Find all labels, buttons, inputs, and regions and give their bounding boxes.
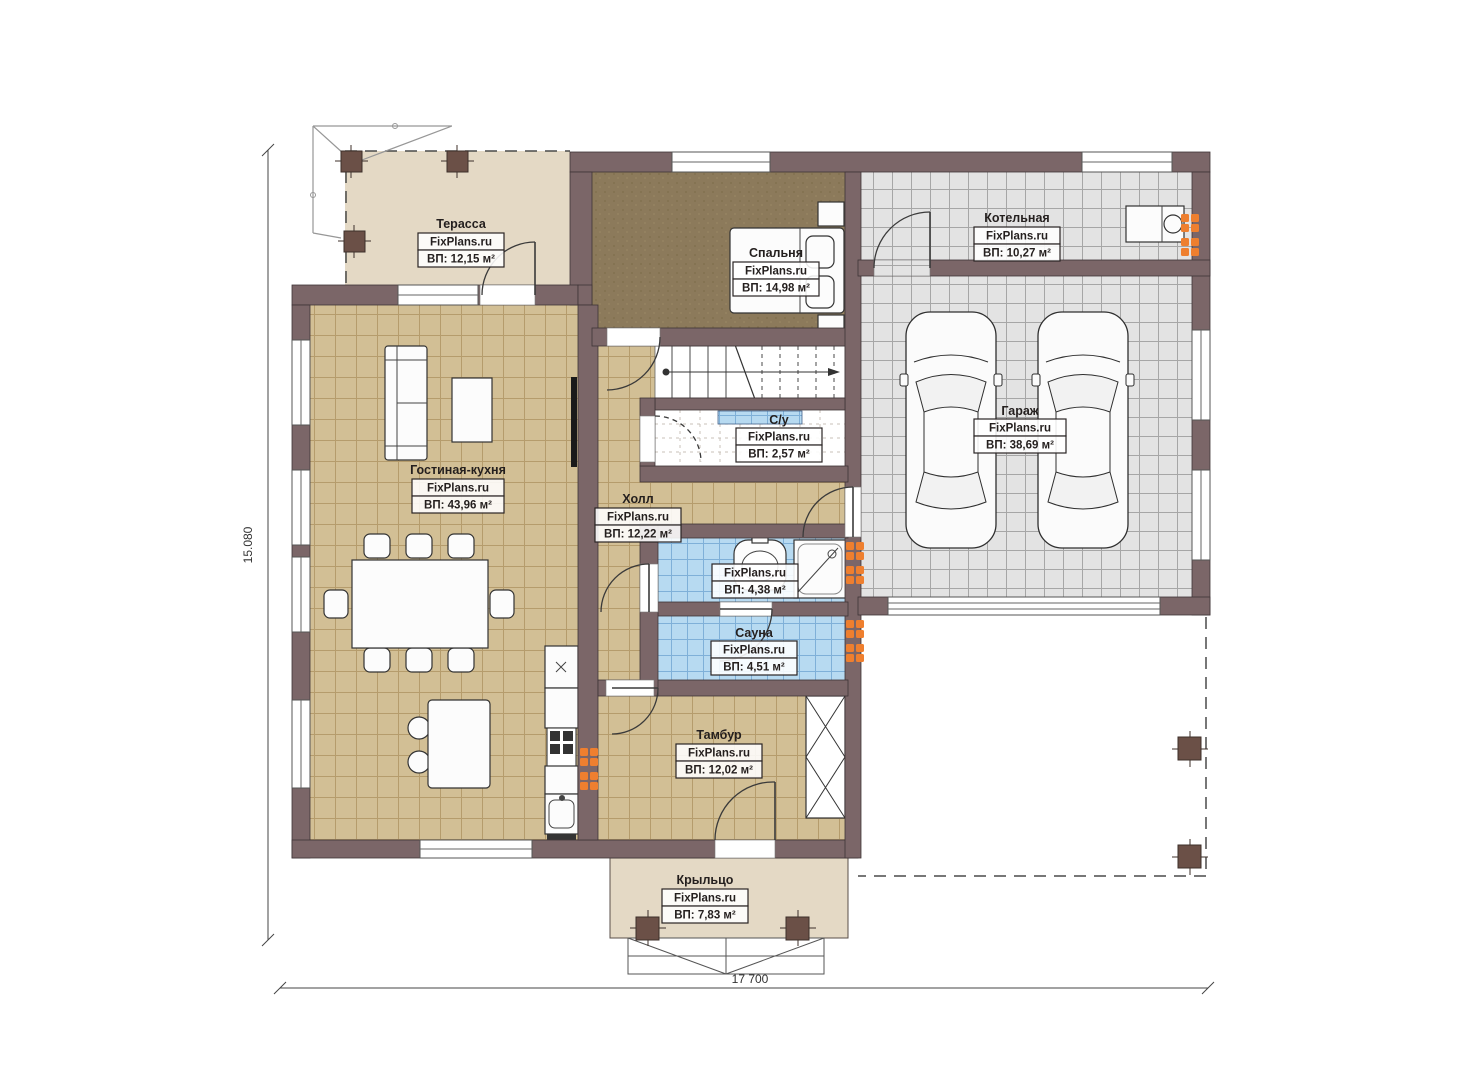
dimension-bottom: 17 700 xyxy=(274,972,1214,994)
svg-text:FixPlans.ru: FixPlans.ru xyxy=(989,423,1051,435)
svg-text:ВП: 4,51 м²: ВП: 4,51 м² xyxy=(723,662,785,674)
shower-icon xyxy=(794,540,846,598)
svg-text:Холл: Холл xyxy=(622,492,653,506)
svg-text:FixPlans.ru: FixPlans.ru xyxy=(427,483,489,495)
svg-text:Сауна: Сауна xyxy=(735,626,774,640)
driveway-outline xyxy=(858,617,1208,876)
svg-text:15.080: 15.080 xyxy=(241,526,255,563)
svg-text:ВП: 7,83 м²: ВП: 7,83 м² xyxy=(674,910,736,922)
svg-text:ВП: 4,38 м²: ВП: 4,38 м² xyxy=(724,585,786,597)
kitchen-counter-icon xyxy=(545,646,578,840)
closet-icon xyxy=(806,696,845,818)
boiler-icon xyxy=(1126,206,1184,242)
svg-text:ВП: 38,69 м²: ВП: 38,69 м² xyxy=(986,440,1054,452)
stairs-icon xyxy=(655,342,845,402)
svg-text:FixPlans.ru: FixPlans.ru xyxy=(688,748,750,760)
vanity-counter xyxy=(718,411,802,424)
svg-text:ВП: 2,57 м²: ВП: 2,57 м² xyxy=(748,449,810,461)
svg-text:17 700: 17 700 xyxy=(732,972,769,986)
svg-text:ВП: 43,96 м²: ВП: 43,96 м² xyxy=(424,500,492,512)
svg-text:ВП: 14,98 м²: ВП: 14,98 м² xyxy=(742,283,810,295)
coffee-table-icon xyxy=(452,378,492,442)
svg-text:Котельная: Котельная xyxy=(984,211,1049,225)
room-label-living: Гостиная-кухня FixPlans.ru ВП: 43,96 м² xyxy=(410,463,506,513)
dimension-left: 15.080 xyxy=(241,144,274,946)
svg-text:FixPlans.ru: FixPlans.ru xyxy=(723,645,785,657)
room-label-boiler: Котельная FixPlans.ru ВП: 10,27 м² xyxy=(974,211,1060,261)
svg-text:FixPlans.ru: FixPlans.ru xyxy=(724,568,786,580)
svg-text:FixPlans.ru: FixPlans.ru xyxy=(430,237,492,249)
tv-icon xyxy=(571,377,577,467)
svg-text:FixPlans.ru: FixPlans.ru xyxy=(607,512,669,524)
garage-gate xyxy=(888,597,1160,615)
svg-text:Спальня: Спальня xyxy=(749,246,803,260)
room-label-bathroom: FixPlans.ru ВП: 4,38 м² xyxy=(712,564,798,598)
svg-text:FixPlans.ru: FixPlans.ru xyxy=(986,231,1048,243)
porch-steps xyxy=(628,938,824,974)
svg-text:Гостиная-кухня: Гостиная-кухня xyxy=(410,463,506,477)
svg-text:ВП: 12,02 м²: ВП: 12,02 м² xyxy=(685,765,753,777)
sofa-icon xyxy=(385,346,427,460)
svg-text:Тамбур: Тамбур xyxy=(696,728,742,742)
svg-text:ВП: 12,22 м²: ВП: 12,22 м² xyxy=(604,529,672,541)
floor-plan-page: 15.080 17 700 Терасса FixPlans.ru ВП: 12… xyxy=(0,0,1473,1080)
svg-text:FixPlans.ru: FixPlans.ru xyxy=(748,432,810,444)
svg-text:С/у: С/у xyxy=(769,413,789,427)
floor-plan-drawing: 15.080 17 700 Терасса FixPlans.ru ВП: 12… xyxy=(0,0,1473,1080)
svg-text:FixPlans.ru: FixPlans.ru xyxy=(745,266,807,278)
svg-text:Гараж: Гараж xyxy=(1001,404,1038,418)
svg-text:ВП: 10,27 м²: ВП: 10,27 м² xyxy=(983,248,1051,260)
svg-text:ВП: 12,15 м²: ВП: 12,15 м² xyxy=(427,254,495,266)
svg-text:Крыльцо: Крыльцо xyxy=(677,873,734,887)
svg-text:Терасса: Терасса xyxy=(436,217,487,231)
svg-text:FixPlans.ru: FixPlans.ru xyxy=(674,893,736,905)
